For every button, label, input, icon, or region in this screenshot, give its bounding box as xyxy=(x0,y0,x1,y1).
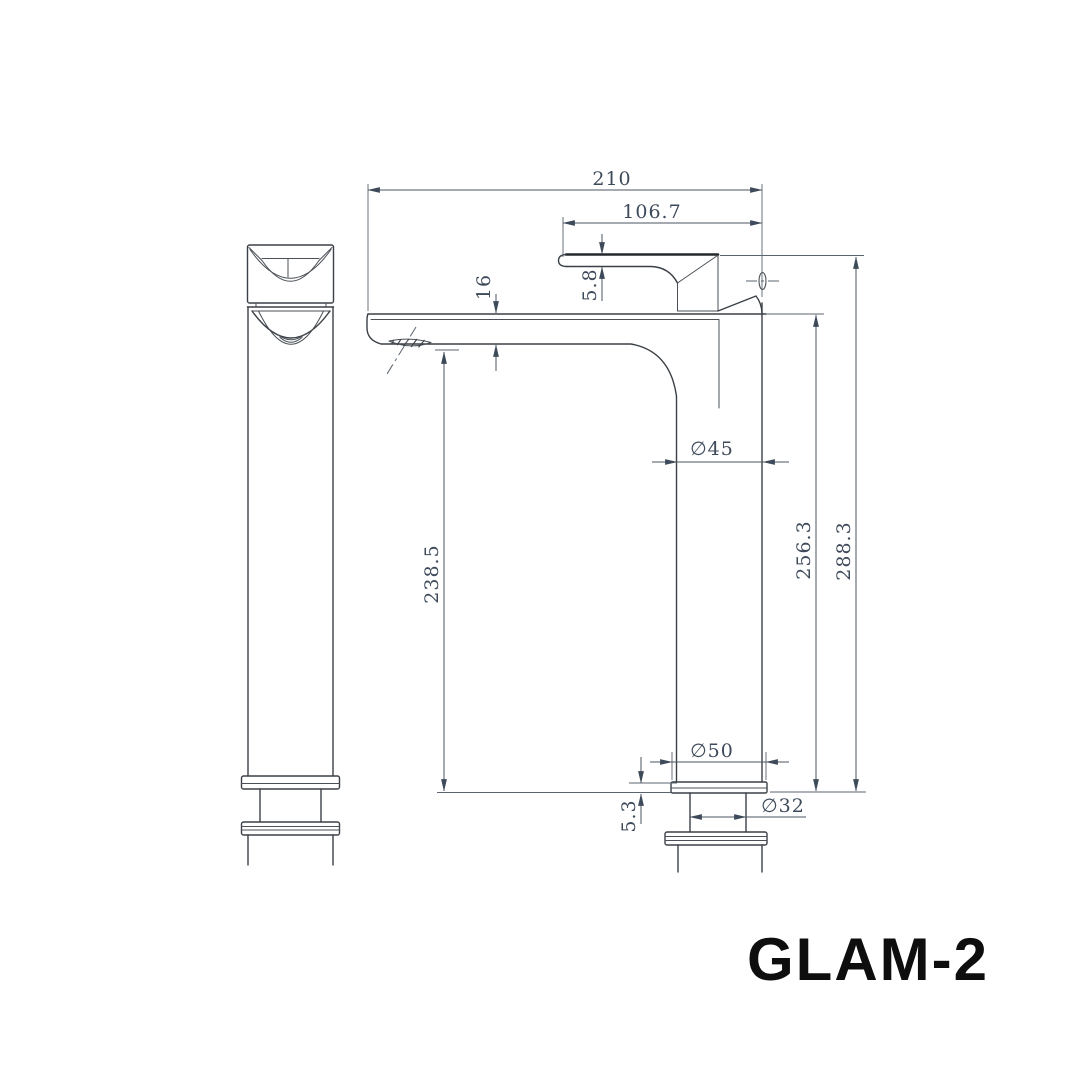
front-aerator-arc-outer xyxy=(276,334,306,340)
side-aerator-outline xyxy=(389,339,431,346)
dimension-body-height: 256.3 xyxy=(766,314,824,791)
dimension-spout-tip-thickness: 16 xyxy=(473,274,496,371)
dimension-handle-thickness: 5.8 xyxy=(579,234,602,302)
side-handle-base-wedge xyxy=(678,256,719,312)
dim-spout-tip-thickness-label: 16 xyxy=(473,274,495,300)
front-thread-shank xyxy=(248,835,333,865)
faucet-dimension-drawing: 210 106.7 5.8 16 ∅45 xyxy=(0,0,1080,1080)
side-mounting-nut-lines xyxy=(665,837,767,841)
product-title: GLAM-2 xyxy=(747,926,989,993)
dim-handle-length-label: 106.7 xyxy=(622,201,681,223)
front-base-flange xyxy=(242,776,340,789)
dim-shank-diameter-label: ∅32 xyxy=(761,795,805,817)
front-handle-chamfer-right xyxy=(319,248,332,261)
dimension-base-diameter: ∅50 xyxy=(650,740,789,780)
front-shank-stem xyxy=(260,789,321,822)
side-handle-back-chamfer xyxy=(678,256,718,284)
dim-spout-height-label: 238.5 xyxy=(421,544,443,603)
side-mounting-nut xyxy=(665,832,767,845)
dim-body-height-label: 256.3 xyxy=(793,520,815,579)
dimension-shank-diameter: ∅32 xyxy=(690,795,806,817)
front-mounting-nut-lines xyxy=(242,827,340,831)
dimension-flange-thickness: 5.3 xyxy=(618,757,677,833)
dim-body-diameter-label: ∅45 xyxy=(690,438,734,460)
front-mounting-nut xyxy=(242,822,340,835)
side-thread-shank xyxy=(678,845,762,872)
front-handle-outline xyxy=(248,245,334,303)
dim-total-height-label: 288.3 xyxy=(833,521,855,580)
dimension-handle-length: 106.7 xyxy=(563,201,762,257)
front-handle-chamfer-left xyxy=(249,248,262,261)
side-water-jet-centerline xyxy=(387,327,416,374)
faucet-front-view xyxy=(242,245,340,865)
dimension-spout-height: 238.5 xyxy=(421,350,671,793)
dimension-total-width: 210 xyxy=(368,168,762,311)
dim-flange-thickness-label: 5.3 xyxy=(618,799,640,832)
front-handle-dish-outer xyxy=(250,250,331,279)
dimensions: 210 106.7 5.8 16 ∅45 xyxy=(368,168,866,833)
dimension-body-diameter: ∅45 xyxy=(652,438,789,462)
dim-handle-thickness-label: 5.8 xyxy=(579,268,601,301)
dim-base-diameter-label: ∅50 xyxy=(690,740,734,762)
side-shank-stem xyxy=(690,793,746,832)
side-spout-body-outline xyxy=(367,314,677,782)
dim-total-width-label: 210 xyxy=(592,168,631,190)
technical-drawing-page: 210 106.7 5.8 16 ∅45 xyxy=(0,0,1080,1080)
side-handle-base-slope xyxy=(718,296,762,313)
front-spout-arc-outer xyxy=(252,311,330,338)
front-body-column xyxy=(248,307,333,776)
